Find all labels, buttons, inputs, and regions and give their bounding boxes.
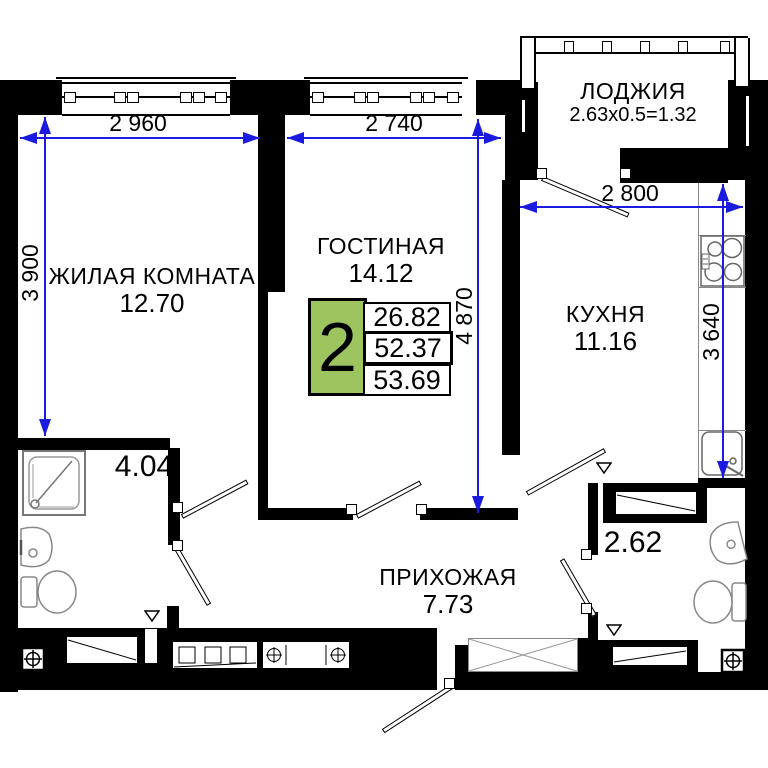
- loggia-glazing-left: [520, 38, 536, 88]
- wall-outer-right: [745, 180, 768, 690]
- dim-label-kitchen-width: 2 800: [545, 180, 715, 207]
- door-jamb: [620, 168, 631, 179]
- dim-arrow: [717, 461, 729, 478]
- summary-total-area: 53.69: [363, 364, 451, 396]
- glazing-mark: [720, 41, 730, 53]
- window-casement-mark: [423, 92, 435, 103]
- wc-sink-icon: [700, 520, 748, 570]
- room-label-loggia: ЛОДЖИЯ 2.63x0.5=1.32: [541, 78, 725, 127]
- wall-kitchen-counter-end: [698, 478, 745, 488]
- dim-arrow: [20, 132, 37, 144]
- floor-plan: 2 960 2 740 3 900 4 870 2 800 3 640 ЖИЛА…: [0, 0, 768, 768]
- window-casement-mark: [410, 92, 422, 103]
- bathroom-toilet-icon: [20, 570, 78, 614]
- window-casement-mark: [447, 92, 459, 103]
- room-name: ЖИЛАЯ КОМНАТА: [40, 263, 264, 289]
- wall-lounge-bottom-left: [258, 508, 353, 520]
- dim-arrow: [520, 201, 537, 213]
- band-gap-strip: [145, 629, 157, 663]
- summary-apartment-area: 52.37: [363, 331, 453, 365]
- wall-outer-left: [0, 80, 18, 692]
- door-jamb: [172, 540, 183, 551]
- loggia-glazing-right: [734, 38, 750, 86]
- summary-rooms-count: 2: [308, 298, 367, 396]
- window-casement-mark: [193, 92, 205, 103]
- window-glazing-line: [310, 96, 462, 98]
- door-entrance: [382, 684, 453, 733]
- room-area: 14.12: [296, 259, 466, 289]
- wall-bathroom-jamb-pillar: [167, 606, 179, 630]
- dim-label-living-width: 2 960: [58, 110, 218, 137]
- dim-line-living-width: [20, 137, 260, 139]
- dim-label-lounge-width: 2 740: [314, 110, 474, 137]
- vent-triangle-icon: [606, 624, 622, 636]
- window-casement-mark: [312, 92, 324, 103]
- wc-toilet-icon: [692, 578, 748, 626]
- door-bathroom: [174, 546, 211, 606]
- door-lounge: [356, 480, 422, 518]
- window-casement-mark: [64, 92, 76, 103]
- room-area-formula: 2.63x0.5=1.32: [541, 104, 725, 127]
- room-label-wc: 2.62: [598, 526, 668, 561]
- room-label-bathroom: 4.04: [104, 450, 184, 485]
- window-casement-mark: [367, 92, 379, 103]
- window-casement-mark: [114, 92, 126, 103]
- wc-shelf-top-icon: [615, 491, 697, 515]
- door-jamb: [416, 504, 427, 515]
- wall-kitchen-left: [502, 180, 520, 455]
- dim-arrow: [39, 117, 51, 134]
- door-living-room: [181, 480, 249, 519]
- vent-triangle-icon: [144, 610, 160, 622]
- room-label-hall: ПРИХОЖАЯ 7.73: [358, 564, 538, 620]
- shoe-cabinet-icon: [172, 641, 258, 669]
- floor-drain-icon: [20, 646, 46, 672]
- dim-arrow: [472, 119, 484, 136]
- wc-floor-drain-icon: [720, 648, 746, 674]
- wall-top-left: [0, 80, 62, 115]
- room-name: ГОСТИНАЯ: [296, 233, 466, 259]
- door-jamb: [346, 504, 357, 515]
- dim-arrow: [287, 132, 304, 144]
- bench-cabinet-icon: [262, 641, 350, 669]
- wall-wc-left-upper: [588, 483, 598, 555]
- window-sill-line-2: [304, 77, 468, 79]
- wall-lounge-bottom-right: [420, 508, 518, 520]
- glazing-mark: [640, 41, 650, 53]
- loggia-left-vent-tick: [522, 100, 525, 132]
- door-jamb: [581, 549, 592, 560]
- dim-arrow: [39, 419, 51, 436]
- entrance-doorway-gap: [437, 628, 455, 672]
- summary-living-area: 26.82: [363, 302, 451, 333]
- dim-arrow: [472, 496, 484, 513]
- hall-wardrobe-crossed-icon: [468, 638, 578, 672]
- room-name: ЛОДЖИЯ: [541, 78, 725, 104]
- wall-partition-thin: [258, 292, 268, 510]
- loggia-right-vent-tick: [746, 96, 749, 146]
- dim-arrow: [717, 184, 729, 201]
- dim-label-kitchen-depth: 3 640: [698, 272, 724, 392]
- room-name: ПРИХОЖАЯ: [358, 564, 538, 590]
- door-jamb: [581, 603, 592, 614]
- room-name: КУХНЯ: [528, 301, 683, 327]
- vent-triangle-icon: [596, 462, 612, 474]
- window-casement-mark: [215, 92, 227, 103]
- wall-outer-bottom-right: [455, 672, 768, 690]
- loggia-glazing-top: [520, 36, 748, 54]
- wardrobe-icon: [66, 636, 138, 664]
- room-label-kitchen: КУХНЯ 11.16: [528, 301, 683, 357]
- door-jamb: [444, 678, 455, 689]
- door-jamb: [172, 502, 183, 513]
- door-jamb: [536, 168, 547, 179]
- wall-top-middle: [230, 80, 310, 115]
- glazing-mark: [564, 41, 574, 53]
- dim-arrow: [243, 132, 260, 144]
- wall-wc-left-lower: [588, 612, 598, 658]
- glazing-mark: [678, 41, 688, 53]
- wall-bathroom-top: [18, 438, 170, 450]
- room-label-living: ЖИЛАЯ КОМНАТА 12.70: [40, 263, 264, 319]
- shower-tray-icon: [22, 450, 86, 516]
- dim-arrow: [484, 132, 501, 144]
- dim-line-lounge-width: [287, 137, 501, 139]
- wc-shelf-bottom-icon: [612, 646, 688, 666]
- wall-loggia-bottom: [620, 148, 728, 183]
- window-sill-line-1: [56, 77, 236, 79]
- room-area: 12.70: [40, 289, 264, 319]
- window-casement-mark: [127, 92, 139, 103]
- glazing-mark: [602, 41, 612, 53]
- room-area: 11.16: [528, 327, 683, 357]
- bathroom-sink-icon: [16, 524, 58, 570]
- room-area: 7.73: [358, 590, 538, 620]
- window-casement-mark: [180, 92, 192, 103]
- dim-line-lounge-depth: [477, 119, 479, 513]
- window-casement-mark: [354, 92, 366, 103]
- room-label-lounge: ГОСТИНАЯ 14.12: [296, 233, 466, 289]
- dim-arrow: [726, 201, 743, 213]
